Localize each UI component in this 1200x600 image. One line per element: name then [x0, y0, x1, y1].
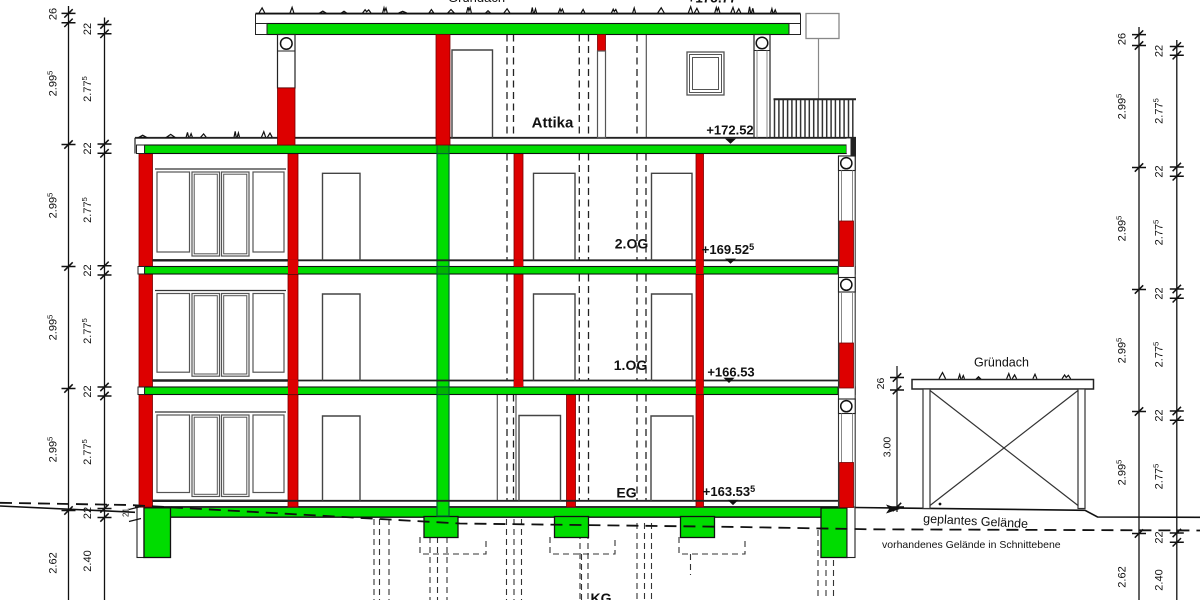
svg-text:26: 26 [875, 378, 887, 390]
svg-text:Attika: Attika [532, 114, 574, 131]
svg-text:22: 22 [1154, 409, 1166, 421]
svg-text:26: 26 [48, 8, 60, 20]
svg-text:2.62: 2.62 [48, 552, 60, 573]
svg-text:vorhandenes Gelände in Schnitt: vorhandenes Gelände in Schnittebene [882, 539, 1061, 551]
svg-text:Gründach: Gründach [974, 356, 1029, 370]
svg-text:2.OG: 2.OG [615, 236, 649, 252]
svg-text:+169.525: +169.525 [702, 242, 754, 257]
svg-text:22: 22 [1154, 531, 1166, 543]
svg-text:26: 26 [1117, 33, 1129, 45]
svg-text:3.00: 3.00 [882, 437, 894, 458]
svg-text:+166.53: +166.53 [707, 364, 754, 379]
svg-text:1.OG: 1.OG [614, 357, 648, 373]
svg-text:2.40: 2.40 [1154, 569, 1166, 590]
svg-text:22: 22 [1154, 165, 1166, 177]
svg-text:22: 22 [1154, 287, 1166, 299]
svg-text:2.40: 2.40 [82, 550, 94, 571]
svg-text:22: 22 [82, 385, 94, 397]
svg-text:Gründach: Gründach [448, 0, 505, 5]
svg-text:22: 22 [82, 23, 94, 35]
svg-text:22: 22 [1154, 45, 1166, 57]
svg-text:+175.77: +175.77 [687, 0, 736, 5]
svg-text:2.62: 2.62 [1117, 566, 1129, 587]
svg-text:EG: EG [616, 484, 636, 500]
svg-text:+172.52: +172.52 [706, 122, 753, 137]
svg-text:22: 22 [82, 264, 94, 276]
svg-text:+163.535: +163.535 [703, 484, 755, 499]
svg-text:22: 22 [82, 507, 94, 519]
svg-text:KG: KG [591, 590, 612, 600]
svg-text:22: 22 [82, 142, 94, 154]
